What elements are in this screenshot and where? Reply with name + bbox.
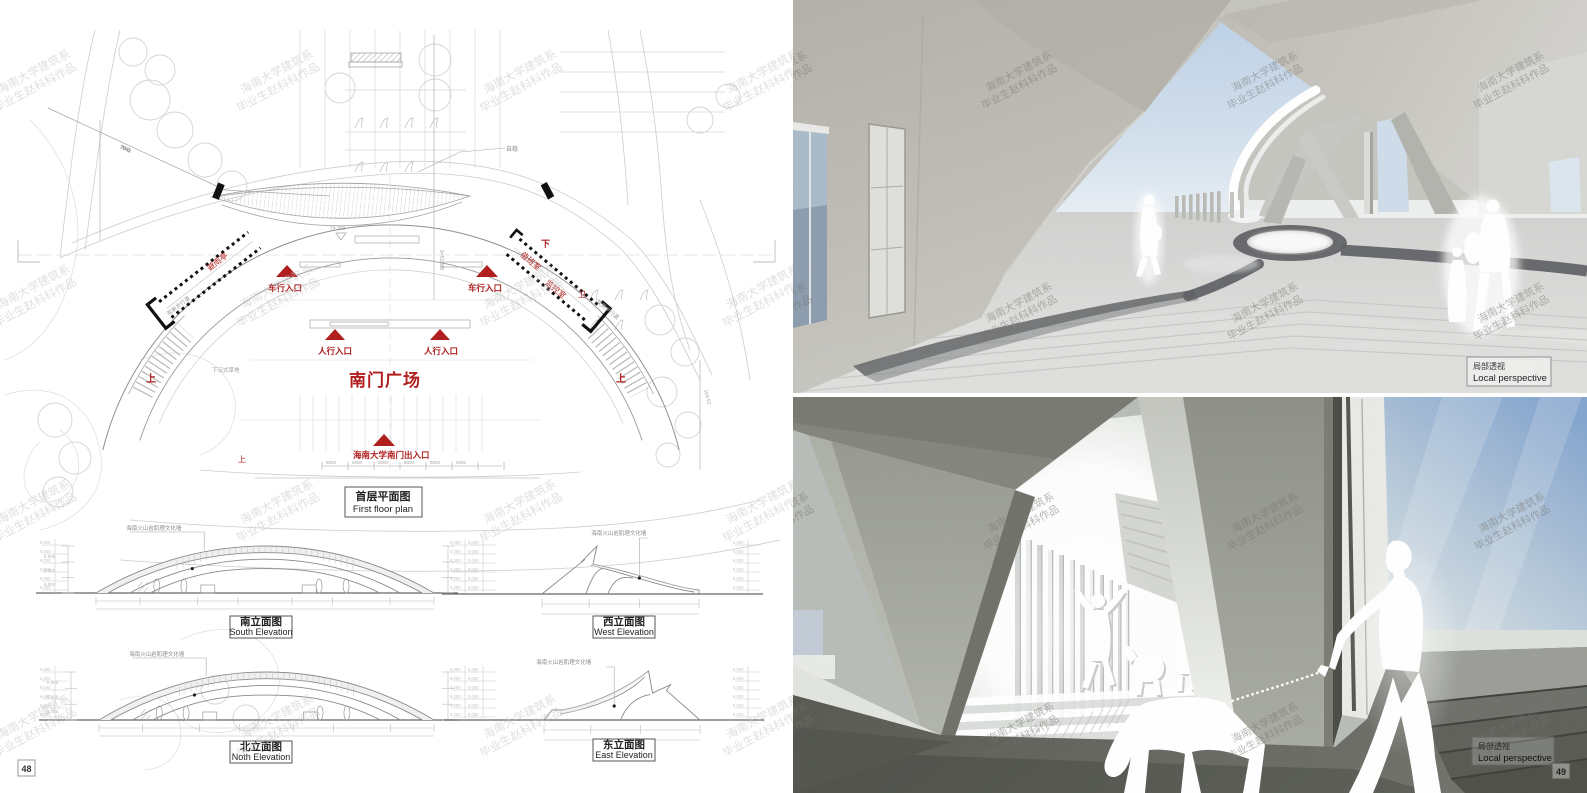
- svg-text:6.000: 6.000: [450, 667, 461, 672]
- svg-text:6.000: 6.000: [733, 703, 744, 708]
- svg-text:6.000: 6.000: [733, 667, 744, 672]
- svg-text:卫: 卫: [578, 290, 586, 299]
- svg-text:6.000: 6.000: [733, 694, 744, 699]
- svg-text:South Elevation: South Elevation: [229, 627, 292, 637]
- svg-text:局部透视: 局部透视: [1473, 361, 1505, 371]
- svg-text:首层平面图: 首层平面图: [356, 489, 411, 503]
- svg-text:6.000: 6.000: [450, 567, 461, 572]
- svg-text:海南火山岩肌理文化墙: 海南火山岩肌理文化墙: [591, 529, 647, 537]
- svg-text:自稳: 自稳: [506, 145, 518, 153]
- svg-text:6.000: 6.000: [468, 694, 479, 699]
- svg-text:海南火山岩肌理文化墙: 海南火山岩肌理文化墙: [536, 658, 592, 666]
- svg-text:6.000: 6.000: [468, 667, 479, 672]
- svg-text:Local perspective: Local perspective: [1473, 373, 1547, 384]
- svg-text:海南火山岩肌理文化墙: 海南火山岩肌理文化墙: [129, 650, 185, 658]
- svg-text:6.000: 6.000: [40, 694, 51, 699]
- svg-text:6.000: 6.000: [468, 712, 479, 717]
- svg-text:上: 上: [616, 372, 626, 385]
- svg-text:6.000: 6.000: [468, 567, 479, 572]
- svg-text:6.000: 6.000: [40, 540, 51, 545]
- svg-text:6.000: 6.000: [40, 576, 51, 581]
- svg-text:海南火山岩肌理文化墙: 海南火山岩肌理文化墙: [126, 524, 182, 532]
- svg-text:6.000: 6.000: [733, 685, 744, 690]
- svg-text:南门广场: 南门广场: [349, 370, 421, 390]
- svg-text:West Elevation: West Elevation: [594, 627, 654, 637]
- svg-text:6.000: 6.000: [40, 567, 51, 572]
- svg-text:车行入口: 车行入口: [468, 283, 502, 293]
- svg-text:6.000: 6.000: [733, 676, 744, 681]
- svg-text:6.000: 6.000: [468, 540, 479, 545]
- svg-text:6.000: 6.000: [733, 549, 744, 554]
- svg-text:5000: 5000: [378, 460, 389, 465]
- svg-text:6.000: 6.000: [468, 585, 479, 590]
- svg-text:下沉式草地: 下沉式草地: [212, 366, 240, 374]
- svg-text:5000: 5000: [404, 460, 415, 465]
- svg-text:6.000: 6.000: [450, 540, 461, 545]
- svg-text:6.000: 6.000: [733, 576, 744, 581]
- svg-text:6.000: 6.000: [40, 585, 51, 590]
- svg-text:5000: 5000: [326, 460, 337, 465]
- svg-text:9=5123B: 9=5123B: [438, 250, 444, 271]
- svg-text:6.000: 6.000: [733, 558, 744, 563]
- svg-text:5000: 5000: [352, 460, 363, 465]
- svg-text:6.000: 6.000: [450, 703, 461, 708]
- svg-text:6.000: 6.000: [450, 576, 461, 581]
- svg-text:海南大学南门出入口: 海南大学南门出入口: [353, 450, 430, 460]
- svg-text:6.000: 6.000: [450, 685, 461, 690]
- svg-text:6.000: 6.000: [40, 667, 51, 672]
- svg-text:6.000: 6.000: [468, 576, 479, 581]
- svg-text:East Elevation: East Elevation: [595, 750, 653, 760]
- svg-text:6.000: 6.000: [40, 676, 51, 681]
- svg-text:6.000: 6.000: [468, 558, 479, 563]
- svg-text:49: 49: [1556, 767, 1566, 777]
- svg-text:6.000: 6.000: [468, 676, 479, 681]
- svg-text:6.000: 6.000: [450, 676, 461, 681]
- svg-text:48: 48: [21, 764, 31, 774]
- svg-text:5000: 5000: [430, 460, 441, 465]
- svg-text:人行入口: 人行入口: [318, 346, 352, 356]
- svg-text:5000: 5000: [456, 460, 467, 465]
- svg-text:上: 上: [238, 455, 246, 464]
- svg-text:6.000: 6.000: [468, 549, 479, 554]
- svg-text:6.000: 6.000: [40, 685, 51, 690]
- svg-text:6.000: 6.000: [733, 712, 744, 717]
- svg-text:6.000: 6.000: [40, 558, 51, 563]
- svg-text:上: 上: [146, 372, 156, 385]
- svg-text:人行入口: 人行入口: [424, 346, 458, 356]
- svg-text:6.000: 6.000: [733, 567, 744, 572]
- svg-text:6.000: 6.000: [450, 558, 461, 563]
- svg-text:下: 下: [541, 239, 550, 249]
- svg-text:6.000: 6.000: [468, 685, 479, 690]
- svg-text:6.000: 6.000: [450, 549, 461, 554]
- svg-text:6.000: 6.000: [450, 585, 461, 590]
- svg-text:6.000: 6.000: [450, 694, 461, 699]
- svg-text:First floor plan: First floor plan: [353, 504, 413, 515]
- svg-text:6.000: 6.000: [733, 585, 744, 590]
- svg-text:6.000: 6.000: [40, 549, 51, 554]
- svg-text:6.000: 6.000: [468, 703, 479, 708]
- svg-text:6.000: 6.000: [450, 712, 461, 717]
